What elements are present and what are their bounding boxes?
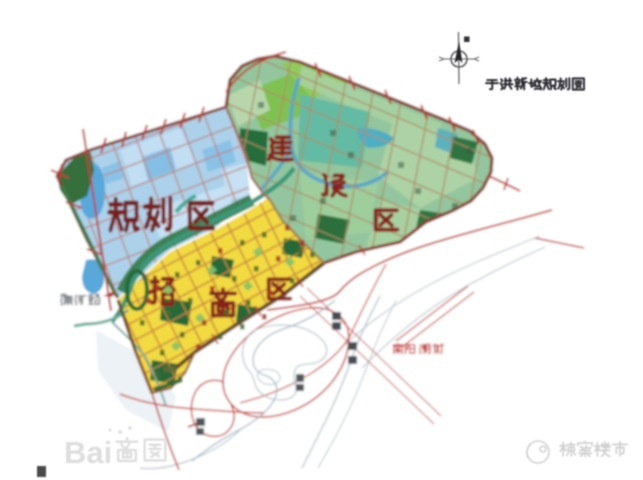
svg-text:Bai: Bai xyxy=(64,435,112,470)
